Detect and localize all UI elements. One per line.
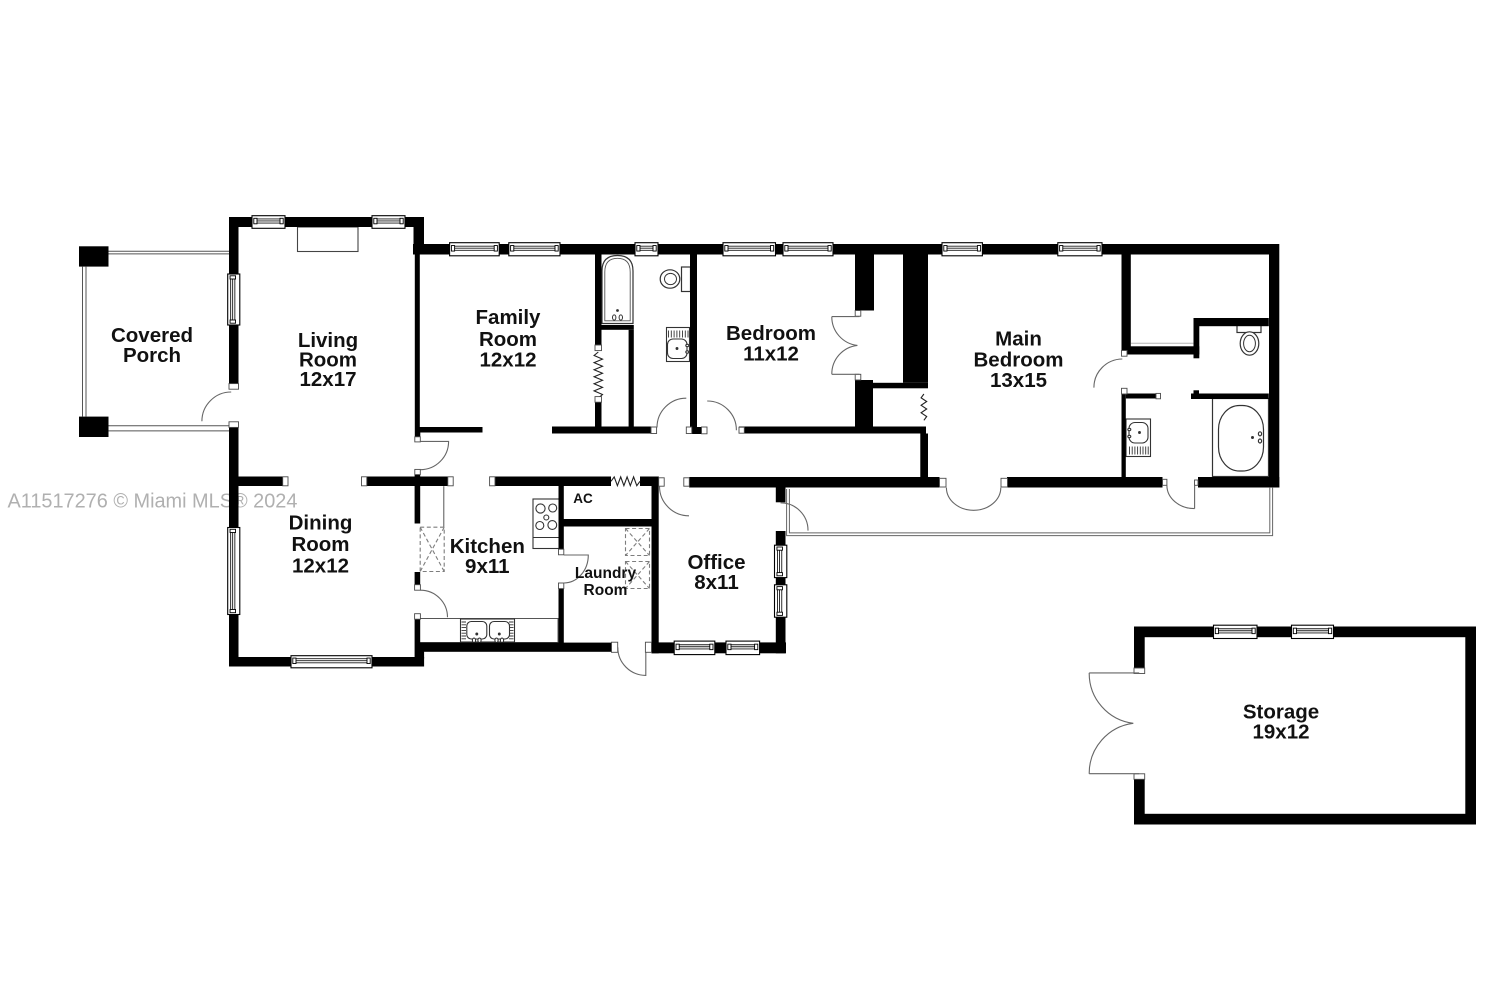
svg-text:CoveredPorch: CoveredPorch [111, 324, 193, 367]
svg-text:LivingRoom12x17: LivingRoom12x17 [298, 329, 358, 391]
svg-text:DiningRoom12x12: DiningRoom12x12 [289, 512, 353, 578]
svg-text:FamilyRoom12x12: FamilyRoom12x12 [476, 306, 542, 371]
svg-text:Office8x11: Office8x11 [687, 551, 745, 594]
svg-text:A11517276 © Miami MLS® 2024: A11517276 © Miami MLS® 2024 [8, 491, 298, 513]
svg-text:LaundryRoom: LaundryRoom [575, 565, 637, 599]
svg-text:AC: AC [573, 491, 593, 506]
svg-text:Storage19x12: Storage19x12 [1243, 701, 1319, 744]
